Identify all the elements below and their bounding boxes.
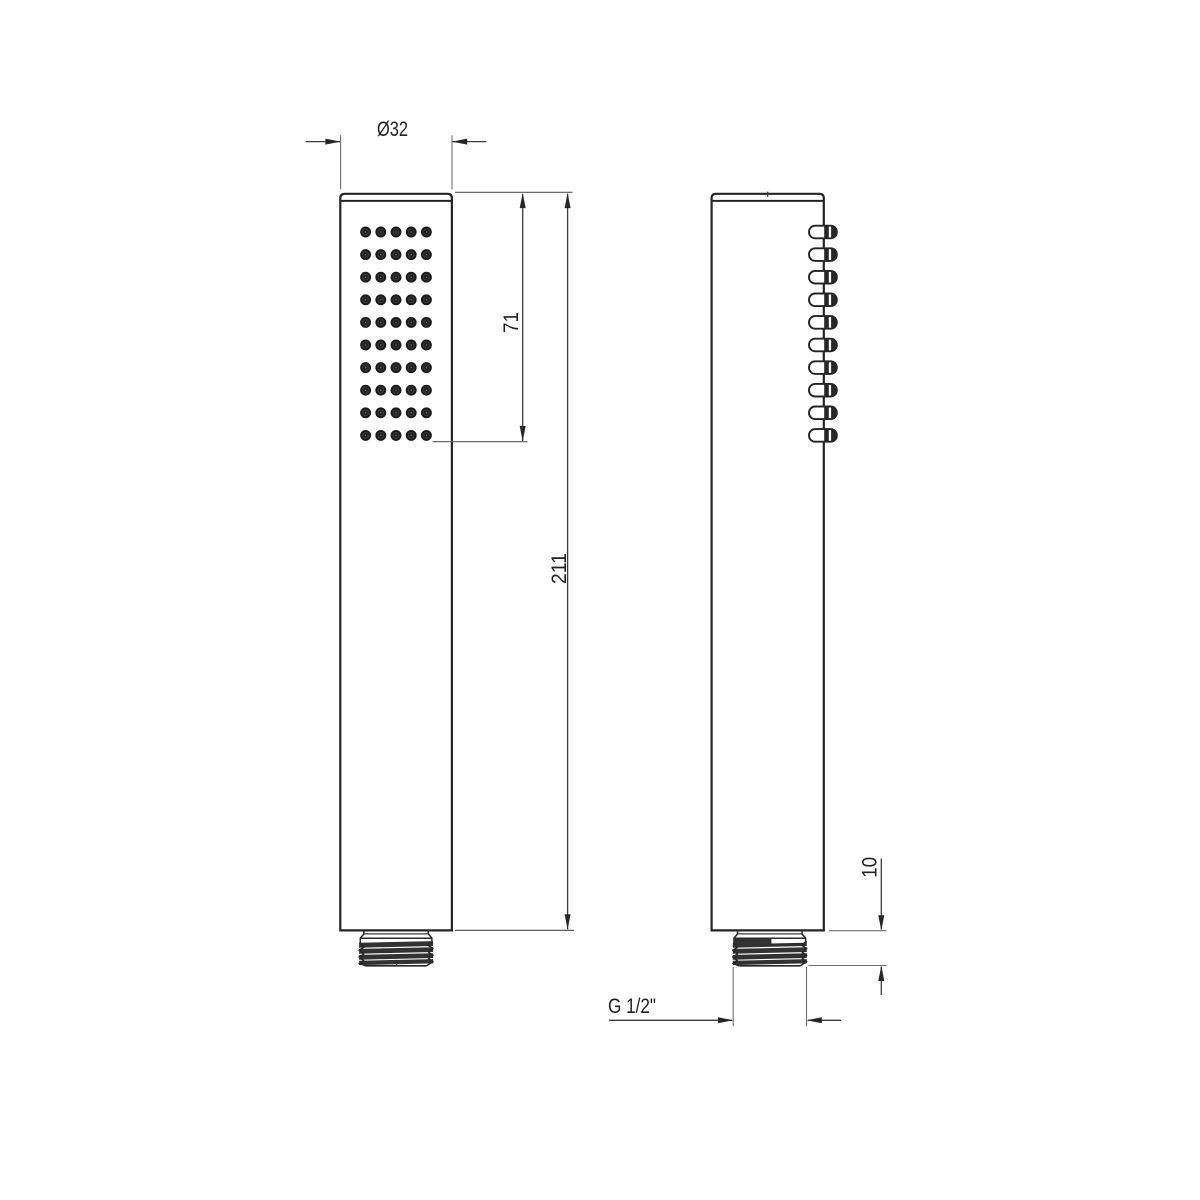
svg-text:211: 211: [547, 553, 571, 584]
svg-text:Ø32: Ø32: [377, 117, 408, 141]
svg-text:10: 10: [858, 857, 882, 878]
svg-text:71: 71: [499, 312, 523, 333]
svg-text:G 1/2": G 1/2": [608, 994, 656, 1018]
